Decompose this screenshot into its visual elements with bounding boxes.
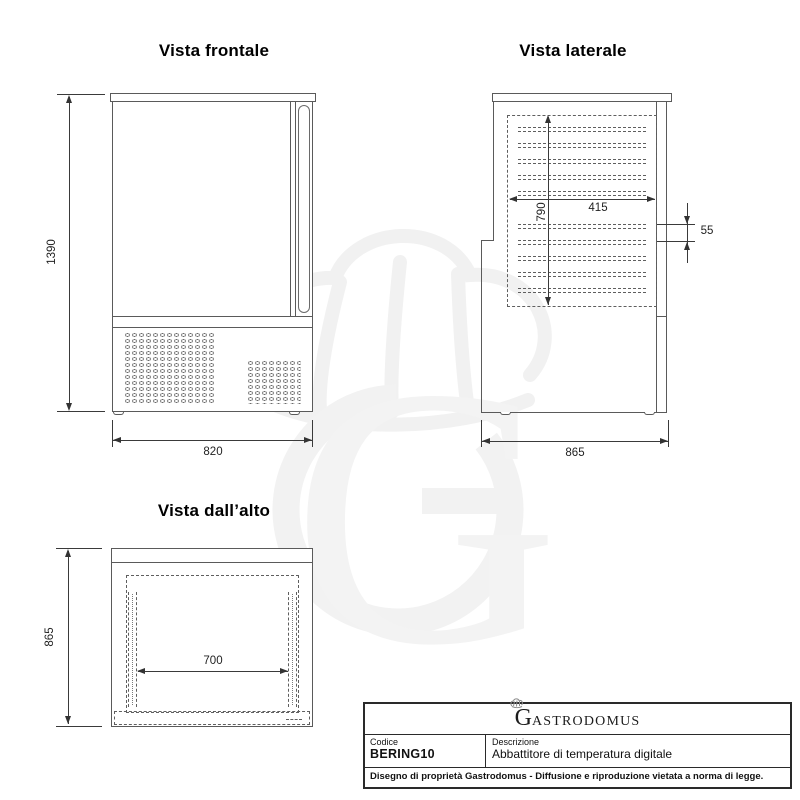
front-door-handle-groove [298, 105, 310, 313]
front-foot-left [113, 412, 124, 415]
side-shelf-pitch-arrow-top [684, 216, 690, 224]
top-rail-span-arrow-left [137, 668, 145, 674]
side-depth-dim-ext-right [668, 420, 669, 447]
shelf-line [518, 175, 646, 180]
side-chamber-depth-arrow-left [509, 196, 517, 202]
front-door-edge-line-2 [295, 102, 296, 316]
front-vent-grille-left [124, 332, 216, 404]
top-depth-dim-tick-bottom [56, 726, 102, 727]
side-shelf-pitch-ext-top [657, 224, 695, 225]
shelf-line [518, 159, 646, 164]
logo-text: ASTRODOMUS [532, 714, 640, 730]
top-rail-right-edge [288, 592, 289, 707]
disclaimer-row: Disegno di proprietà Gastrodomus - Diffu… [365, 768, 790, 785]
front-width-dim-ext-right [312, 420, 313, 447]
side-left-step-line [481, 240, 494, 241]
front-width-dim-label: 820 [183, 446, 243, 458]
side-chamber-height-label: 790 [536, 192, 548, 232]
side-foot-right [644, 412, 655, 415]
side-chamber-depth-label: 415 [573, 202, 623, 214]
top-rail-span-dim-line [138, 671, 288, 672]
side-chamber-height-dim-line [548, 117, 549, 305]
front-width-dim-arrow-left [113, 437, 121, 443]
front-height-dim-label: 1390 [46, 228, 58, 276]
technical-drawing-sheet: G Vista frontale 1390 820 Vista laterale [0, 0, 800, 800]
front-door-edge-line-1 [290, 102, 291, 316]
side-body-top-line [494, 101, 667, 102]
side-shelf-pitch-arrow-bottom [684, 242, 690, 250]
side-chamber-depth-arrow-right [647, 196, 655, 202]
side-depth-dim-label: 865 [545, 447, 605, 459]
descrizione-cell: Descrizione Abbattitore di temperatura d… [486, 735, 790, 767]
top-rail-span-label: 700 [183, 655, 243, 667]
gastrodomus-logo: GASTRODOMUS [515, 708, 641, 730]
front-foot-right [289, 412, 300, 415]
side-left-upper-line [493, 101, 494, 240]
side-left-lower-line [481, 240, 482, 413]
codice-cell: Codice BERING10 [365, 735, 486, 767]
title-block-fields-row: Codice BERING10 Descrizione Abbattitore … [365, 735, 790, 768]
title-block-logo-row: GASTRODOMUS [365, 704, 790, 735]
top-view-title: Vista dall’alto [134, 501, 294, 521]
side-shelf-pitch-dim-line [687, 203, 688, 263]
top-rail-right-outer [296, 592, 297, 707]
logo-initial: G [515, 708, 532, 728]
codice-label: Codice [370, 737, 480, 747]
top-rail-left-inner [132, 594, 133, 705]
chef-hat-icon [509, 697, 525, 711]
top-front-edge-line [111, 562, 313, 563]
shelf-line [518, 272, 646, 277]
side-chamber-depth-dim-line [510, 199, 655, 200]
top-chamber-outline [126, 575, 299, 713]
top-rail-span-arrow-right [280, 668, 288, 674]
top-rail-right-inner [292, 594, 293, 705]
side-depth-dim-line [482, 441, 668, 442]
front-base-band-line [112, 327, 313, 328]
front-door-bottom-line [112, 316, 313, 317]
disclaimer-text: Disegno di proprietà Gastrodomus - Diffu… [370, 771, 763, 782]
front-vent-grille-right [247, 360, 301, 404]
side-chamber-height-arrow-top [545, 115, 551, 123]
front-height-dim-arrow-top [66, 95, 72, 103]
title-block: GASTRODOMUS Codice BERING10 Descrizione … [363, 702, 792, 789]
top-depth-dim-tick-top [56, 548, 102, 549]
front-width-dim-arrow-right [304, 437, 312, 443]
front-width-dim-line [113, 440, 312, 441]
side-view-title: Vista laterale [493, 41, 653, 61]
side-shelf-pitch-label: 55 [694, 225, 720, 237]
front-view-title: Vista frontale [134, 41, 294, 61]
side-body-right-outer-line [666, 101, 667, 413]
top-rail-left-outer [128, 592, 129, 707]
shelf-line [518, 256, 646, 261]
descrizione-label: Descrizione [492, 737, 784, 747]
top-depth-dim-label: 865 [44, 613, 56, 661]
shelf-line [518, 240, 646, 245]
shelf-line [518, 288, 646, 293]
shelf-line [518, 143, 646, 148]
top-rear-band-detail [286, 719, 302, 720]
top-depth-dim-arrow-top [65, 549, 71, 557]
shelf-line [518, 127, 646, 132]
front-height-dim-tick-bottom [57, 411, 105, 412]
top-rear-band-outline [114, 711, 310, 725]
front-height-dim-arrow-bottom [66, 403, 72, 411]
side-door-bottom-tick [656, 316, 667, 317]
side-chamber-height-arrow-bottom [545, 297, 551, 305]
front-height-dim-line [69, 97, 70, 408]
watermark-letter: G [292, 332, 559, 702]
top-depth-dim-line [68, 551, 69, 724]
top-rail-left-edge [136, 592, 137, 707]
top-depth-dim-arrow-bottom [65, 716, 71, 724]
side-foot-left [500, 412, 511, 415]
side-depth-dim-arrow-left [482, 438, 490, 444]
descrizione-value: Abbattitore di temperatura digitale [492, 747, 784, 761]
front-height-dim-tick-top [57, 94, 105, 95]
side-depth-dim-arrow-right [660, 438, 668, 444]
codice-value: BERING10 [370, 747, 480, 761]
